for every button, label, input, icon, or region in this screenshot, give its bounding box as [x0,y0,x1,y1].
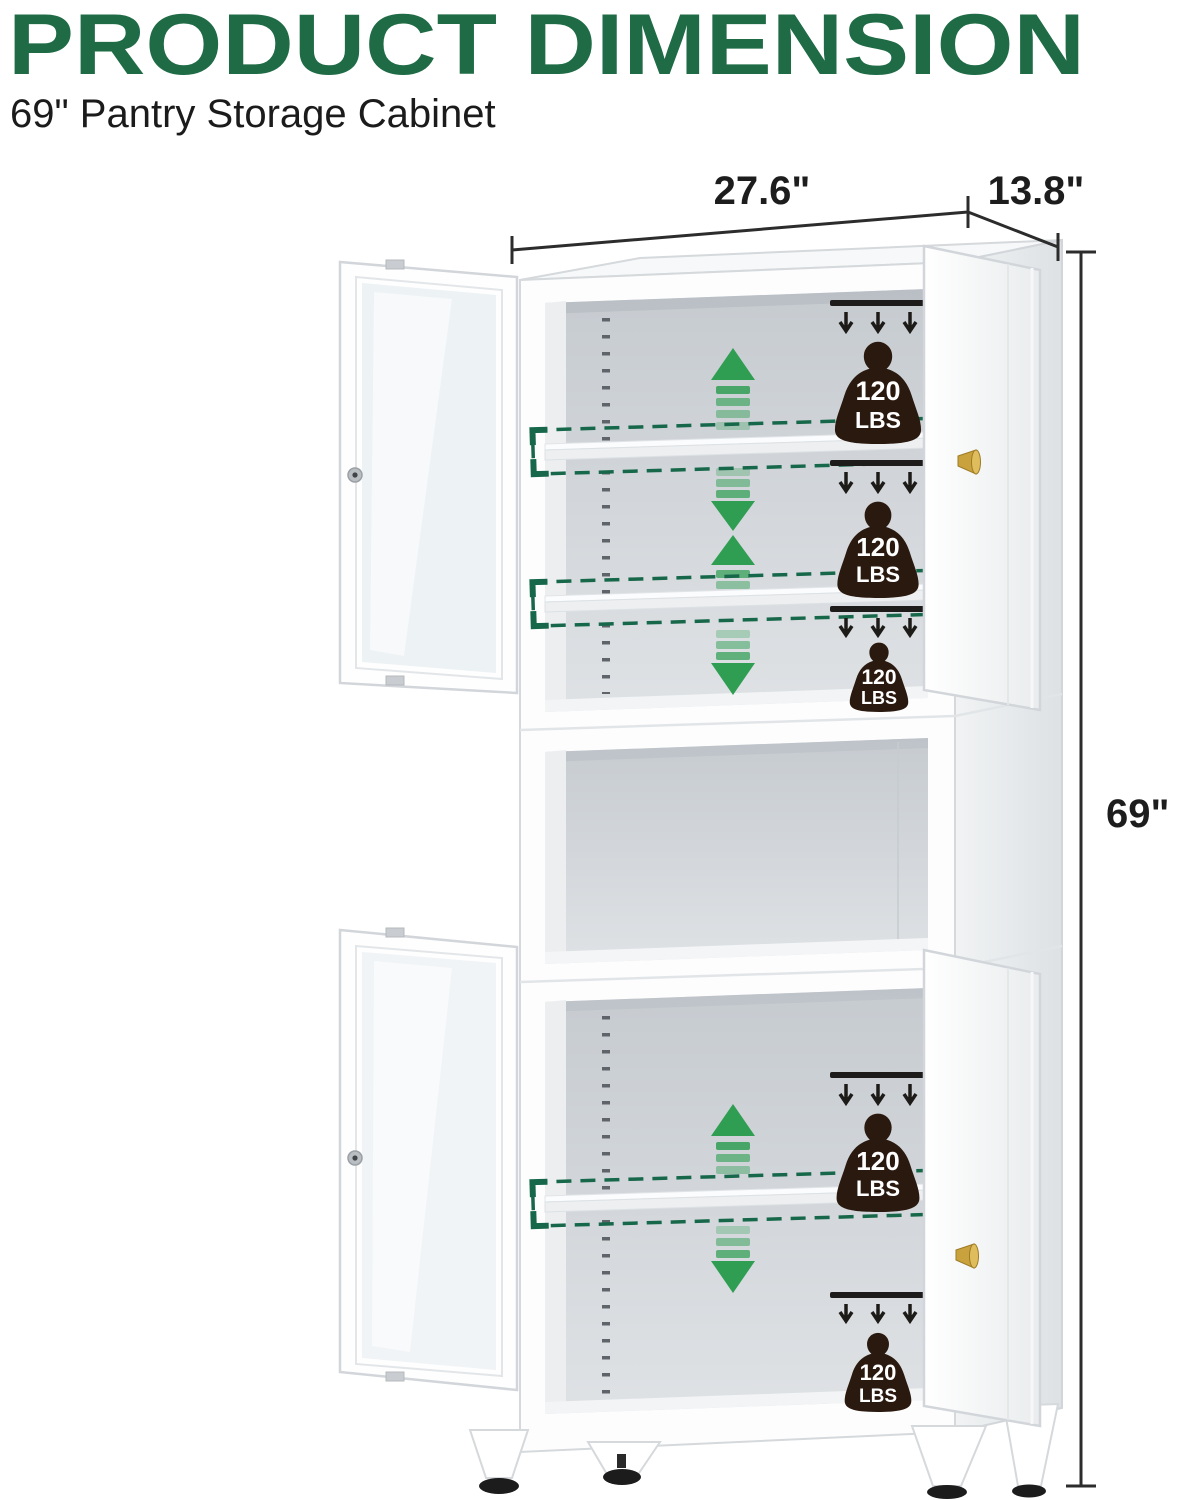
top-right-door [924,246,1040,710]
hinge-icon [386,1372,404,1381]
height-dimension: 69" [1066,252,1169,1486]
weight-unit: LBS [856,1176,900,1201]
weight-value: 120 [856,1146,899,1176]
weight-unit: LBS [859,1386,897,1407]
cabinet-dimension-diagram: 120 LBS 120 LBS 120 LBS [0,0,1181,1500]
leg-back-left [470,1430,528,1494]
weight-value: 120 [861,666,896,689]
weight-value: 120 [860,1360,897,1385]
hinge-icon [386,928,404,937]
weight-unit: LBS [861,688,897,708]
middle-compartment-interior [545,738,928,964]
lock-keyhole-center [352,472,357,477]
weight-value: 120 [856,532,899,562]
leg-front-right [912,1426,986,1499]
load-bar [830,300,926,306]
weight-unit: LBS [855,407,901,433]
load-bar [830,1292,926,1298]
load-bar [830,460,926,466]
top-compartment: 120 LBS 120 LBS 120 LBS [532,289,947,712]
hinge-icon [386,260,404,269]
top-left-glass-door [340,260,517,693]
hinge-icon [386,676,404,685]
height-dimension-label: 69" [1106,792,1169,836]
load-bar [830,606,926,612]
middle-open-compartment [545,738,928,964]
weight-value: 120 [855,376,900,406]
depth-dimension-label: 13.8" [988,169,1085,213]
load-bar [830,1072,926,1078]
leg-front-left [588,1442,660,1485]
bottom-right-door [924,950,1040,1426]
width-dimension-label: 27.6" [714,169,811,213]
bottom-left-glass-door [340,928,517,1390]
product-dimension-page: PRODUCT DIMENSION 69" Pantry Storage Cab… [0,0,1181,1500]
middle-compartment-left-wall [545,750,566,964]
top-compartment-left-wall [545,301,566,712]
weight-unit: LBS [856,562,900,587]
lock-keyhole-center [352,1155,357,1160]
bottom-compartment: 120 LBS 120 LBS [532,988,947,1414]
